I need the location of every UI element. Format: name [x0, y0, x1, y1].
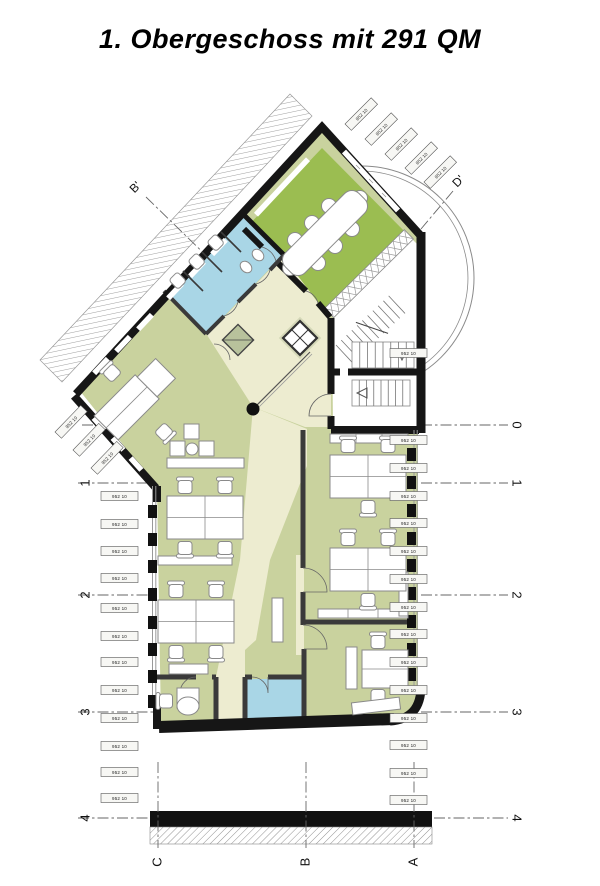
- window-tag: [101, 714, 138, 723]
- section-marker-b: B': [127, 179, 144, 196]
- window-tag: [101, 768, 138, 777]
- grid-label-right-0: 0: [510, 421, 525, 428]
- grid-label-left-3: 3: [77, 708, 92, 715]
- window-tag: [365, 113, 398, 146]
- neighbor-hatch-bottom: [150, 811, 432, 844]
- window-tag: [385, 128, 418, 161]
- window-tag: [390, 436, 427, 445]
- section-marker-d: D': [449, 172, 467, 190]
- window-tag: [390, 492, 427, 501]
- window-tag: [405, 142, 438, 175]
- window-tag: [390, 603, 427, 612]
- stair-flight-h2: [352, 380, 410, 406]
- floor-plan: 952 10: [0, 0, 600, 886]
- window-tag: [390, 519, 427, 528]
- window-tag: [390, 658, 427, 667]
- grid-label-bottom-b: B: [297, 858, 312, 867]
- window-tag: [101, 547, 138, 556]
- window-tag: [390, 464, 427, 473]
- grid-label-right-3: 3: [510, 708, 525, 715]
- grid-label-left-4: 4: [77, 814, 92, 821]
- window-tag: [101, 658, 138, 667]
- grid-label-bottom-a: A: [405, 857, 420, 866]
- window-tag: [101, 742, 138, 751]
- window-tag: [73, 423, 105, 456]
- window-tag: [390, 796, 427, 805]
- grid-label-right-1: 1: [510, 479, 525, 486]
- window-tag: [390, 349, 427, 358]
- page-title: 1. Obergeschoss mit 291 QM: [0, 24, 580, 55]
- window-tag: [390, 575, 427, 584]
- window-tag: [91, 441, 123, 474]
- grid-label-bottom-c: C: [149, 857, 164, 866]
- grid-label-left-2: 2: [77, 591, 92, 598]
- window-tag: [55, 405, 87, 438]
- window-tag: [390, 714, 427, 723]
- window-tag: [390, 769, 427, 778]
- window-tag: [390, 741, 427, 750]
- grid-label-right-2: 2: [510, 591, 525, 598]
- floor-plan-page: 1. Obergeschoss mit 291 QM 952 10: [0, 0, 600, 886]
- window-tag: [390, 630, 427, 639]
- window-tag: [101, 632, 138, 641]
- window-tag: [390, 686, 427, 695]
- grid-label-right-4: 4: [510, 814, 525, 821]
- window-tag: [390, 547, 427, 556]
- kitchen-room: [247, 679, 303, 722]
- window-tag: [101, 686, 138, 695]
- window-tag: [101, 794, 138, 803]
- window-tag: [101, 604, 138, 613]
- grid-label-left-1: 1: [77, 479, 92, 486]
- window-tag: [101, 574, 138, 583]
- window-tag: [101, 520, 138, 529]
- window-tag: [101, 492, 138, 501]
- window-tag: [345, 98, 378, 131]
